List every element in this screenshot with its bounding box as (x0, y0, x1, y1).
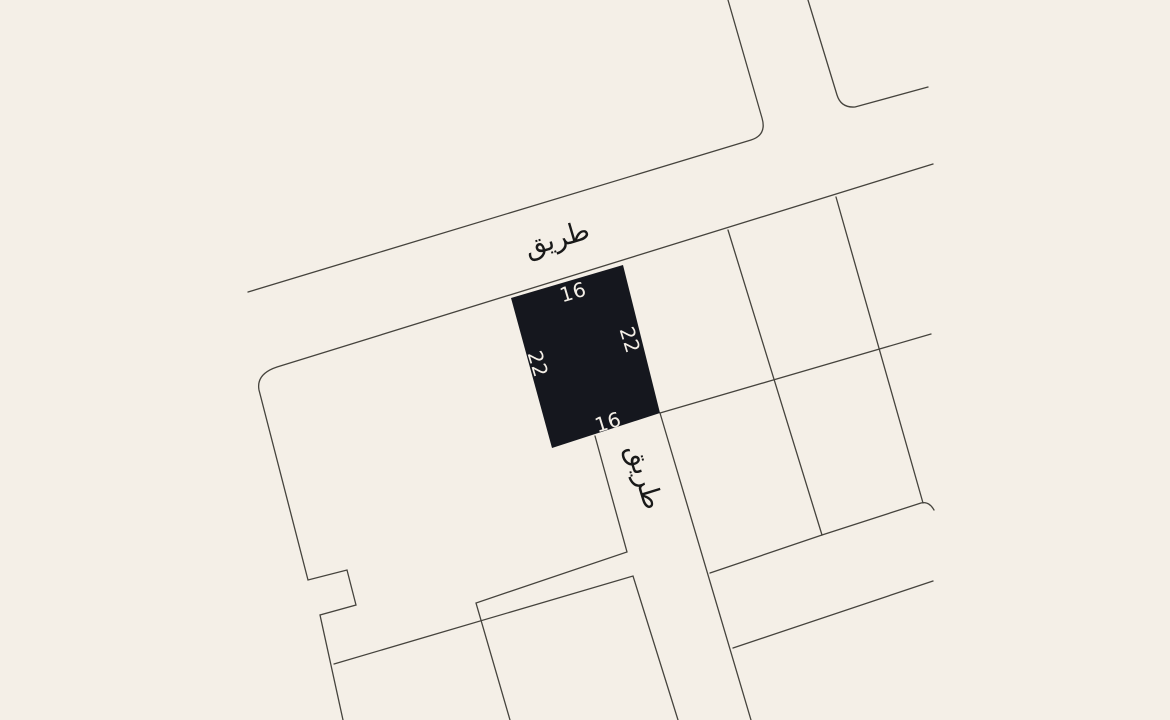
site-plan-map: 16222216 طريقطريق (0, 0, 1170, 720)
parcel-map-canvas: 16222216 طريقطريق (0, 0, 1170, 720)
